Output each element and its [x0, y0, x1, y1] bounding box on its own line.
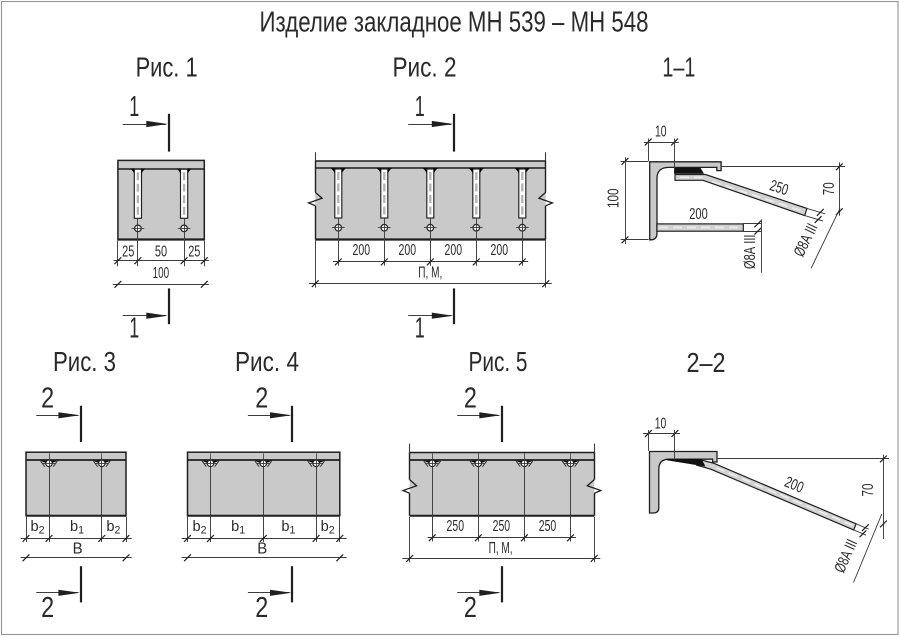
svg-text:Ø8А III: Ø8А III [742, 235, 759, 270]
svg-text:Изделие закладное МН 539 – МН: Изделие закладное МН 539 – МН 548 [260, 7, 649, 39]
svg-text:Рис. 3: Рис. 3 [53, 346, 116, 377]
svg-text:200: 200 [353, 242, 371, 259]
svg-text:2: 2 [255, 592, 268, 624]
svg-text:200: 200 [399, 242, 417, 259]
svg-text:100: 100 [606, 188, 623, 208]
svg-text:250: 250 [493, 518, 511, 535]
svg-text:50: 50 [155, 243, 167, 260]
svg-text:250: 250 [447, 518, 465, 535]
svg-text:200: 200 [445, 242, 463, 259]
svg-text:1: 1 [415, 91, 425, 123]
svg-text:Рис. 4: Рис. 4 [235, 346, 299, 377]
svg-text:1: 1 [129, 313, 139, 345]
svg-text:П, М,: П, М, [489, 540, 513, 557]
svg-text:B: B [73, 540, 83, 557]
svg-text:2: 2 [41, 592, 54, 624]
svg-text:250: 250 [539, 518, 557, 535]
svg-text:25: 25 [188, 243, 200, 260]
svg-text:1: 1 [415, 313, 425, 345]
svg-text:2–2: 2–2 [687, 347, 726, 378]
svg-text:70: 70 [821, 182, 838, 195]
svg-text:2: 2 [41, 383, 54, 415]
svg-text:200: 200 [689, 206, 708, 223]
svg-text:B: B [257, 540, 267, 557]
svg-text:100: 100 [153, 265, 170, 282]
svg-text:25: 25 [122, 243, 134, 260]
svg-text:10: 10 [655, 124, 667, 141]
svg-text:10: 10 [655, 416, 667, 433]
svg-text:1–1: 1–1 [662, 52, 695, 83]
svg-text:Рис. 2: Рис. 2 [393, 52, 457, 83]
svg-text:2: 2 [255, 383, 268, 415]
svg-text:1: 1 [129, 91, 139, 123]
svg-text:П, М,: П, М, [418, 264, 442, 281]
svg-text:2: 2 [464, 592, 477, 624]
svg-text:Рис. 5: Рис. 5 [469, 346, 528, 377]
svg-text:200: 200 [491, 242, 509, 259]
svg-text:2: 2 [464, 383, 477, 415]
svg-text:70: 70 [860, 483, 877, 496]
svg-text:Рис. 1: Рис. 1 [136, 52, 198, 83]
